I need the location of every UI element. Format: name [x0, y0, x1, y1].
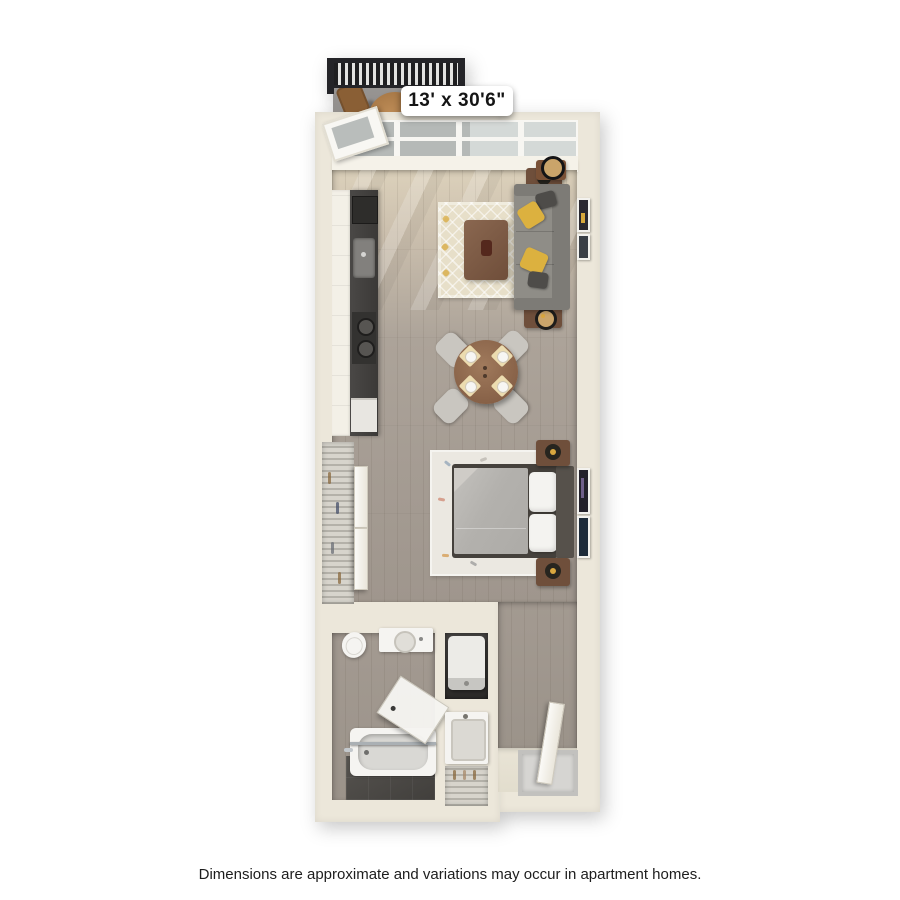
nook-faucet — [463, 714, 468, 719]
rug-accent — [442, 215, 450, 223]
patio-railing-left — [327, 58, 334, 94]
floor-plan-page: 13' x 30'6" Dimensions are approximate a… — [0, 0, 900, 900]
washer-knob — [464, 681, 469, 686]
hallway-floor — [498, 602, 577, 748]
sliding-closet-door — [354, 528, 368, 590]
door-handle — [390, 705, 397, 712]
coffee-table — [464, 220, 508, 280]
throw-pillow-dark — [527, 271, 549, 290]
dimension-label-text: 13' x 30'6" — [408, 90, 506, 112]
headboard — [556, 466, 574, 558]
rug-mark — [480, 457, 488, 462]
table-centerpiece — [483, 366, 487, 370]
linen-item — [453, 770, 456, 780]
bed-pillow — [529, 514, 557, 552]
hanging-clothes — [338, 572, 341, 584]
rug-mark — [470, 560, 478, 566]
plate — [497, 381, 509, 393]
wall-art — [577, 198, 590, 232]
table-decor — [481, 240, 492, 256]
toilet-seat — [343, 635, 365, 657]
balcony-door-glass — [331, 116, 374, 149]
dining-table — [454, 340, 518, 404]
wall-art-accent — [581, 478, 584, 498]
wall-art — [577, 234, 590, 260]
tub-drain — [364, 750, 369, 755]
sliding-closet-door — [354, 466, 368, 528]
vanity-basin — [394, 631, 416, 653]
hanging-clothes — [331, 542, 334, 554]
kitchen-appliance — [352, 196, 378, 224]
rug-mark — [442, 554, 449, 558]
bed-duvet — [454, 468, 528, 554]
kitchen-cabinets — [332, 190, 352, 436]
decor-dot — [541, 314, 545, 318]
shower-handle — [344, 748, 353, 752]
rug-accent — [441, 243, 449, 251]
hanging-clothes — [336, 502, 339, 514]
corner-table-decor — [541, 156, 565, 180]
cooktop-burner — [357, 318, 375, 336]
table-centerpiece — [483, 374, 487, 378]
sofa-cushion-line — [516, 231, 554, 232]
nightstand — [536, 440, 570, 466]
kitchen-sink — [353, 238, 375, 278]
wall-art-accent — [581, 213, 585, 223]
vanity-counter — [379, 628, 433, 652]
rug-mark — [444, 460, 451, 467]
floor-plan-image — [0, 0, 900, 900]
hanging-clothes — [328, 472, 331, 484]
linen-item — [473, 770, 476, 780]
wall-art — [577, 516, 590, 558]
closet-wire-shelving — [322, 442, 354, 604]
linen-item — [463, 770, 466, 780]
wall-art — [577, 468, 590, 514]
nightstand — [536, 558, 570, 586]
disclaimer-text: Dimensions are approximate and variation… — [0, 866, 900, 883]
washer-dryer — [448, 636, 485, 690]
nook-basin — [451, 719, 486, 761]
dishwasher — [351, 398, 377, 432]
duvet-fold — [454, 468, 478, 492]
cooktop-burner — [357, 340, 375, 358]
vanity-faucet — [419, 637, 423, 641]
dimension-label: 13' x 30'6" — [401, 86, 513, 116]
bed-pillow — [529, 472, 557, 512]
kitchen-faucet — [361, 252, 366, 257]
end-table-bowl — [535, 308, 557, 330]
lamp-bulb — [550, 449, 556, 455]
patio-railing — [327, 58, 465, 88]
plate — [465, 381, 477, 393]
duvet-line — [456, 528, 526, 529]
rug-accent — [442, 269, 450, 277]
lamp-bulb — [550, 568, 556, 574]
linen-closet-shelving — [445, 766, 488, 806]
rug-mark — [438, 497, 445, 501]
plate — [465, 351, 477, 363]
nook-counter — [445, 712, 488, 764]
plate — [497, 351, 509, 363]
